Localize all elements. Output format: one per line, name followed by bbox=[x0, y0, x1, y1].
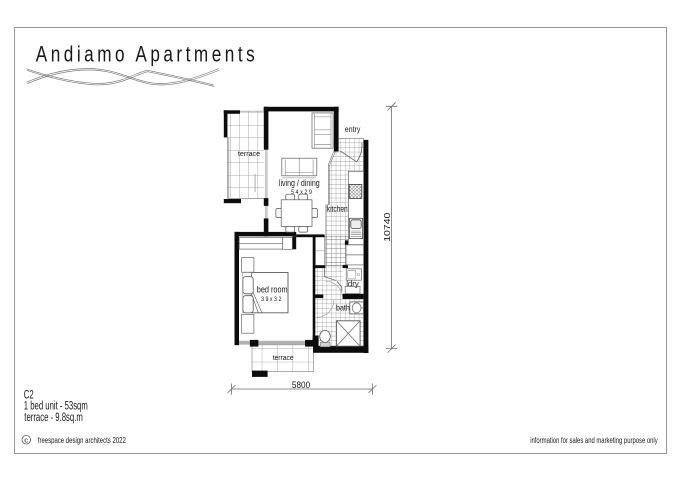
svg-text:information for sales and mark: information for sales and marketing purp… bbox=[530, 435, 658, 445]
svg-text:terrace: terrace bbox=[273, 353, 294, 362]
svg-text:bed room: bed room bbox=[257, 285, 288, 295]
svg-text:c: c bbox=[24, 436, 28, 445]
svg-text:Andiamo Apartments: Andiamo Apartments bbox=[36, 43, 258, 68]
svg-text:5 4 x 2 9: 5 4 x 2 9 bbox=[291, 189, 312, 196]
svg-text:entry: entry bbox=[345, 124, 361, 134]
svg-text:living / dining: living / dining bbox=[279, 178, 320, 188]
svg-text:bath: bath bbox=[336, 303, 350, 313]
svg-text:terrace: terrace bbox=[238, 149, 260, 158]
svg-text:3 9 x 3 2: 3 9 x 3 2 bbox=[261, 296, 282, 303]
svg-text:terrace - 9.8sq.m: terrace - 9.8sq.m bbox=[24, 410, 83, 424]
svg-text:kitchen: kitchen bbox=[327, 203, 348, 213]
svg-text:ldry: ldry bbox=[346, 278, 359, 288]
svg-text:5800: 5800 bbox=[292, 380, 310, 390]
svg-text:freespace design architects 2: freespace design architects 2022 bbox=[38, 435, 126, 445]
svg-text:10740: 10740 bbox=[382, 212, 392, 241]
